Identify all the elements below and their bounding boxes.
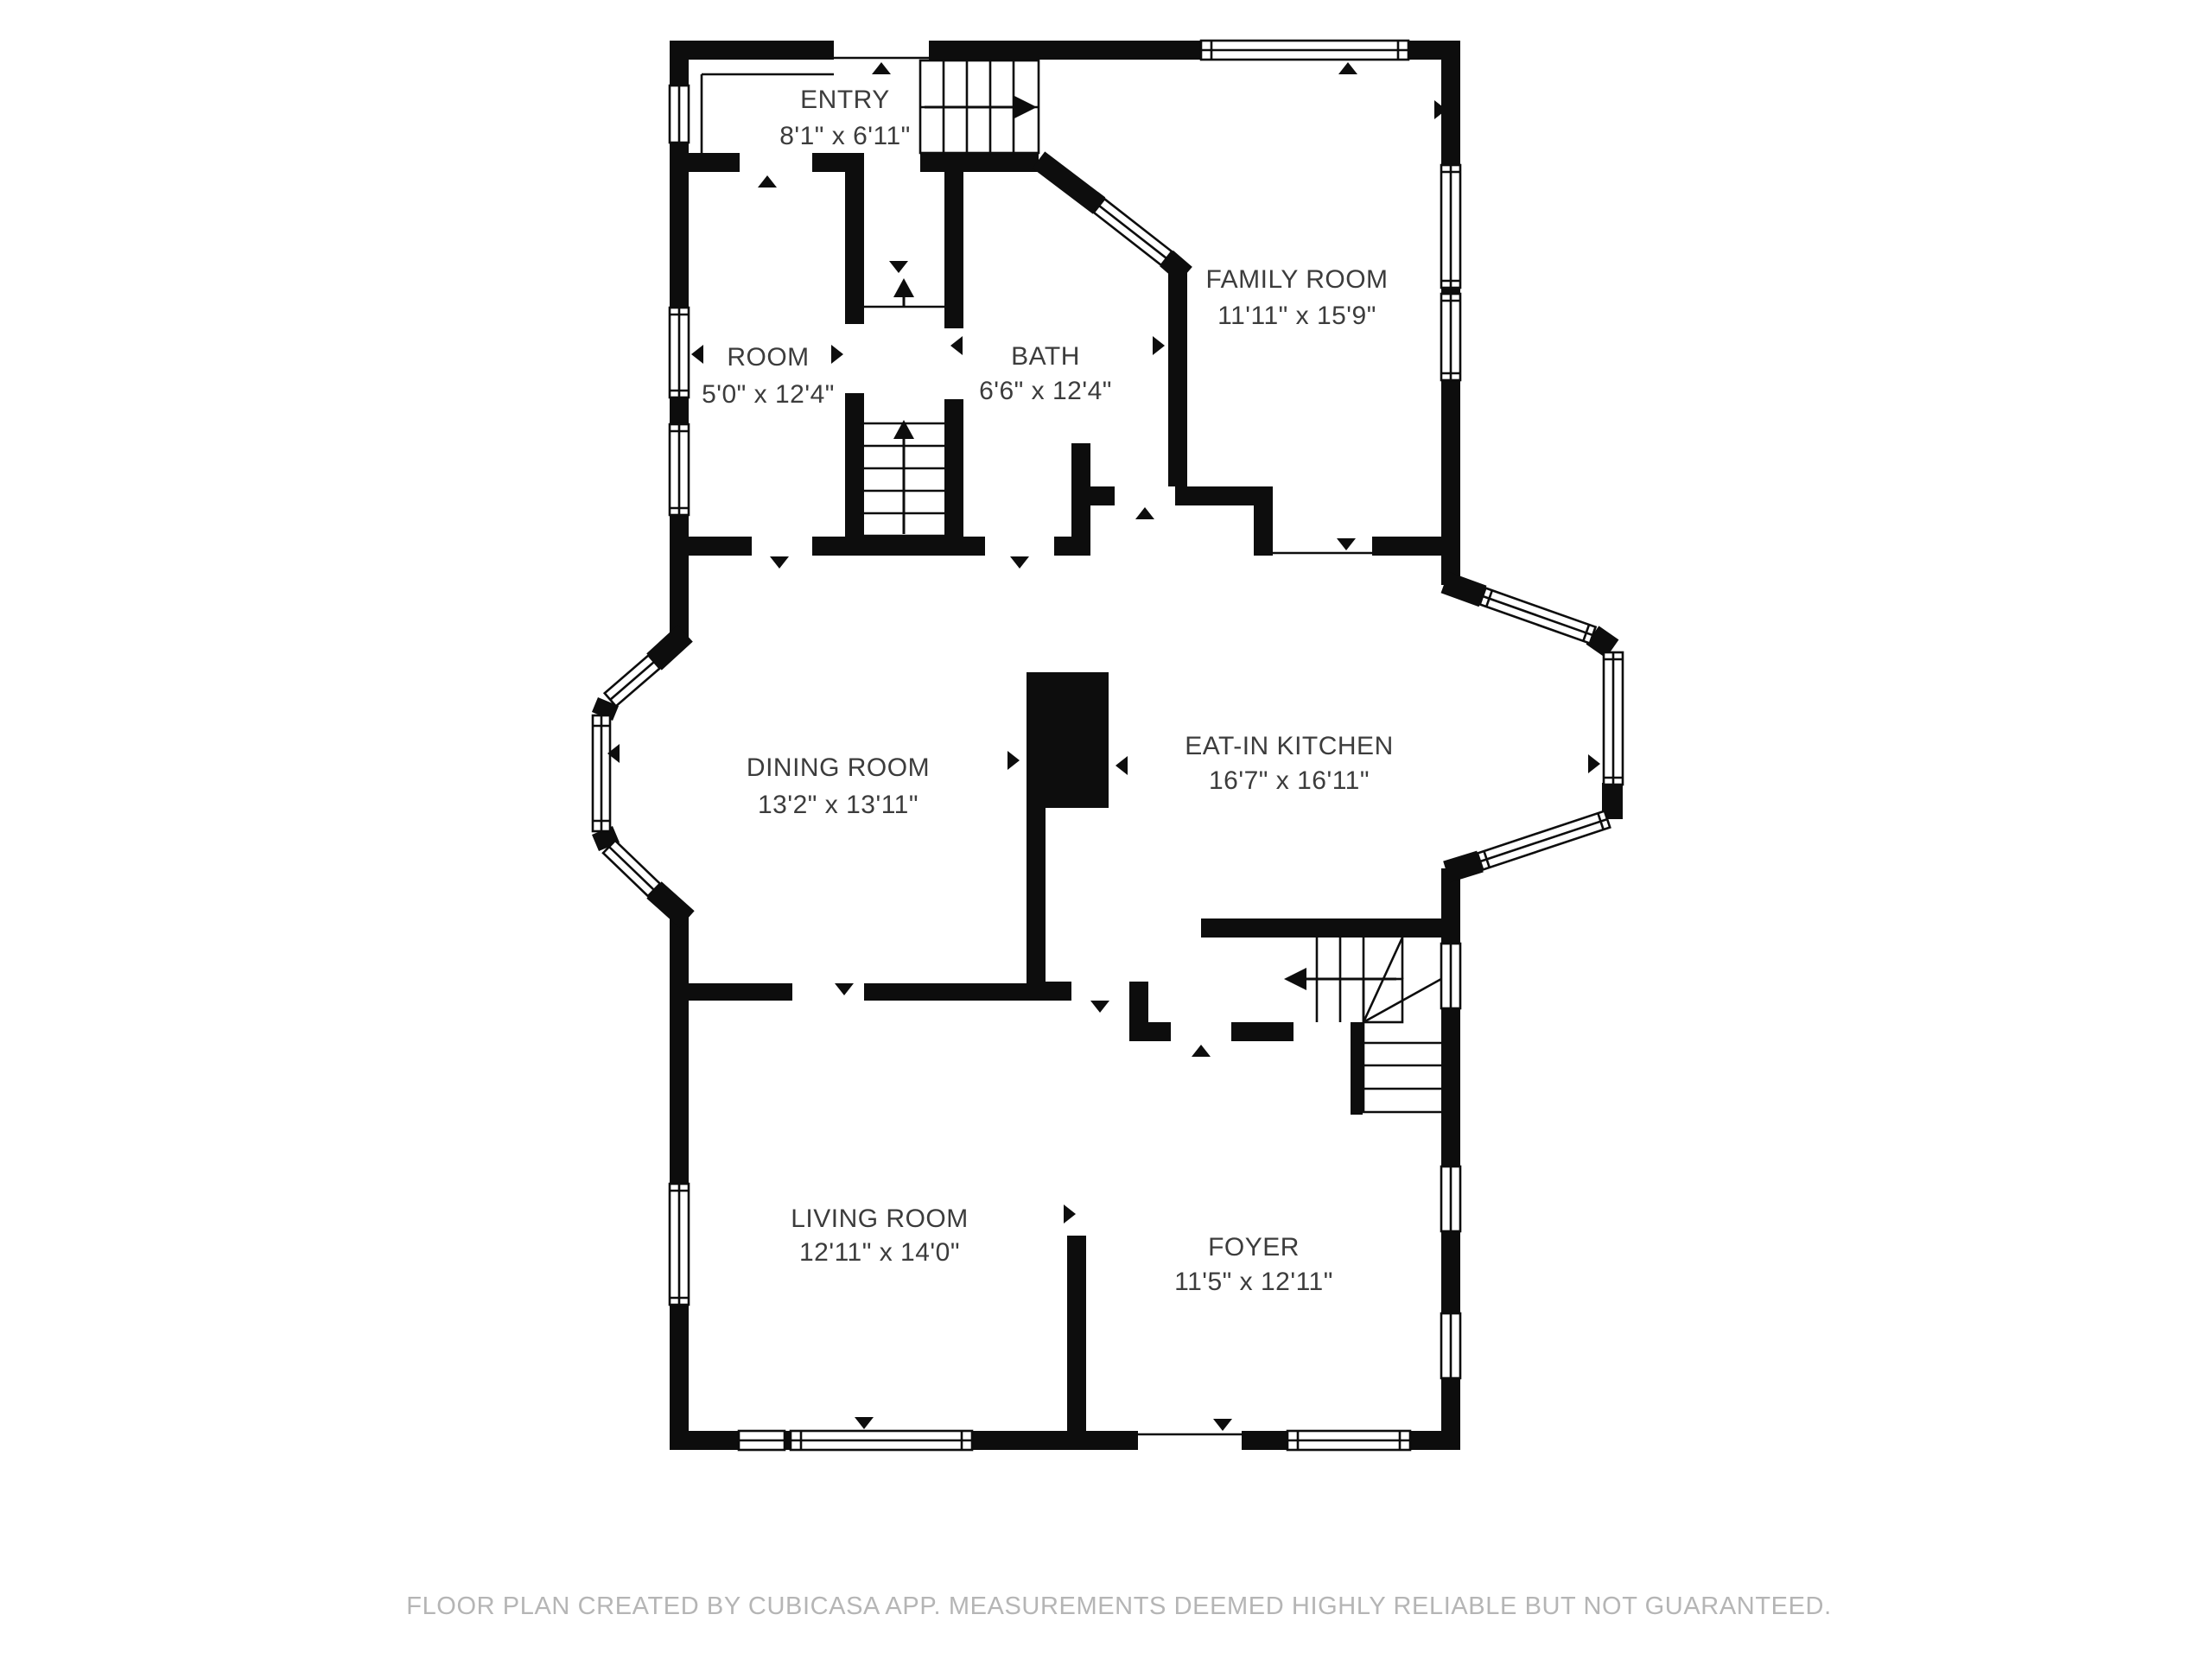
room-label-entry: ENTRY 8'1" x 6'11" xyxy=(779,86,911,150)
door-arrow xyxy=(770,556,789,569)
door-arrow xyxy=(835,983,854,995)
staircase-middle xyxy=(864,261,944,536)
room-name: ROOM xyxy=(727,343,809,372)
door-arrow xyxy=(872,62,891,74)
bay-window-dining xyxy=(593,633,687,919)
floor-plan-canvas: ENTRY 8'1" x 6'11" ROOM 5'0" x 12'4" BAT… xyxy=(0,0,2212,1659)
door-arrow xyxy=(1135,507,1154,519)
room-dims: 6'6" x 12'4" xyxy=(979,377,1112,405)
door-arrow xyxy=(1010,556,1029,569)
stair-up-arrow xyxy=(893,278,914,297)
room-dims: 5'0" x 12'4" xyxy=(702,380,835,409)
staircase-top xyxy=(920,60,1039,153)
room-name: FOYER xyxy=(1208,1233,1300,1262)
staircase-kitchen xyxy=(1284,938,1441,1112)
chimney-block xyxy=(1027,672,1109,808)
door-arrow xyxy=(1064,1205,1076,1224)
bay-window-kitchen xyxy=(1445,582,1623,872)
door-arrow xyxy=(758,175,777,188)
room-dims: 13'2" x 13'11" xyxy=(758,791,918,819)
room-name: BATH xyxy=(1011,342,1080,371)
window xyxy=(603,841,660,896)
room-label-bath: BATH 6'6" x 12'4" xyxy=(979,342,1112,405)
door-arrow xyxy=(1337,538,1356,550)
stair-down-arrow xyxy=(889,261,908,273)
room-label-room: ROOM 5'0" x 12'4" xyxy=(702,343,835,409)
room-label-dining-room: DINING ROOM 13'2" x 13'11" xyxy=(747,753,930,819)
window xyxy=(1478,811,1610,870)
room-label-foyer: FOYER 11'5" x 12'11" xyxy=(1174,1233,1333,1296)
room-name: EAT-IN KITCHEN xyxy=(1185,732,1393,760)
window xyxy=(605,655,660,706)
door-arrow xyxy=(1192,1045,1211,1057)
door-arrow xyxy=(1116,756,1128,775)
room-dims: 16'7" x 16'11" xyxy=(1209,766,1370,795)
room-label-family-room: FAMILY ROOM 11'11" x 15'9" xyxy=(1205,265,1388,330)
door-arrow xyxy=(831,345,843,364)
door-arrow xyxy=(950,336,963,355)
door-arrow xyxy=(1213,1419,1232,1431)
footer-disclaimer: FLOOR PLAN CREATED BY CUBICASA APP. MEAS… xyxy=(406,1592,1831,1620)
room-dims: 8'1" x 6'11" xyxy=(779,122,911,150)
door-arrow xyxy=(691,345,703,364)
door-arrow xyxy=(1153,336,1165,355)
room-label-living-room: LIVING ROOM 12'11" x 14'0" xyxy=(791,1205,969,1267)
room-name: ENTRY xyxy=(800,86,890,114)
room-dims: 12'11" x 14'0" xyxy=(799,1238,960,1267)
room-name: LIVING ROOM xyxy=(791,1205,969,1233)
room-name: FAMILY ROOM xyxy=(1205,265,1388,294)
room-dims: 11'5" x 12'11" xyxy=(1174,1268,1333,1296)
door-arrow xyxy=(1588,754,1600,773)
bath-diagonal-window xyxy=(1094,199,1172,265)
door-arrow xyxy=(1007,751,1020,770)
door-arrow xyxy=(1090,1001,1109,1013)
room-dims: 11'11" x 15'9" xyxy=(1217,302,1376,330)
room-name: DINING ROOM xyxy=(747,753,930,782)
window xyxy=(1480,588,1596,644)
floor-plan-page: ENTRY 8'1" x 6'11" ROOM 5'0" x 12'4" BAT… xyxy=(0,0,2212,1659)
door-arrow xyxy=(1338,62,1357,74)
door-arrow xyxy=(855,1417,874,1429)
room-label-eat-in-kitchen: EAT-IN KITCHEN 16'7" x 16'11" xyxy=(1185,732,1393,795)
